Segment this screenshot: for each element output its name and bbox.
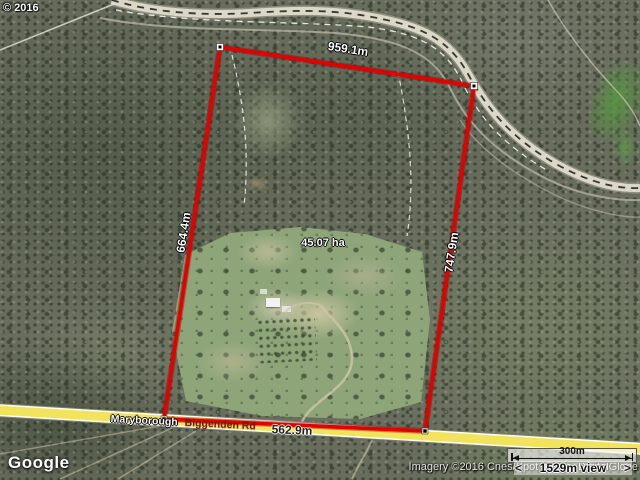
zoom-in-chevron-icon[interactable]: < <box>514 462 523 475</box>
interior-dashed-track-2 <box>398 72 411 236</box>
scale-bar-distance: 300m <box>508 447 636 457</box>
vertex-marker-bottom-right[interactable] <box>422 428 428 434</box>
vertex-marker-top-right[interactable] <box>471 83 478 90</box>
road-edge-line <box>548 0 640 126</box>
area-label: 45.07 ha <box>284 237 362 250</box>
vertex-marker-top-left[interactable] <box>217 44 224 51</box>
scale-bar-line <box>512 458 632 459</box>
zoom-out-chevron-icon[interactable]: > <box>623 462 632 475</box>
scale-bar-tick-right <box>632 453 634 461</box>
view-extent-control: < 1529m view > <box>514 461 632 475</box>
satellite-map[interactable]: 959.1m 664.4m 747.9m 562.9m 45.07 ha Mar… <box>0 0 640 480</box>
interior-dashed-track-1 <box>232 55 246 206</box>
imagery-copyright-year: © 2016 <box>3 2 39 14</box>
view-extent-label: 1529m view <box>540 462 607 475</box>
old-road-line-2 <box>460 120 640 217</box>
google-logo[interactable]: Google <box>8 453 70 473</box>
